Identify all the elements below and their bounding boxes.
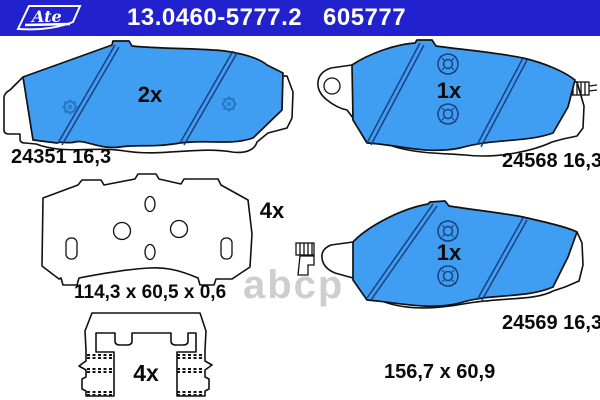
wva-number-outer: 24351 16,3 xyxy=(11,146,111,169)
pad-friction xyxy=(352,40,575,150)
qty-label: 1x xyxy=(437,78,462,103)
wva-number-inner-top: 24568 16,3 xyxy=(502,150,600,173)
qty-label: 2x xyxy=(138,82,163,107)
watermark: abcp xyxy=(243,263,344,308)
qty-label: 1x xyxy=(437,240,462,265)
reference-number: 605777 xyxy=(323,4,406,32)
pad-friction xyxy=(353,201,577,306)
ate-logo: Ate xyxy=(12,2,86,34)
qty-label: 4x xyxy=(260,198,285,223)
wva-number-inner-bottom: 24569 16,3 xyxy=(502,312,600,335)
clip-drawing: 4x xyxy=(70,305,220,400)
qty-label: 4x xyxy=(133,360,159,386)
shim-outline xyxy=(42,174,252,285)
shim-dimensions: 114,3 x 60,5 x 0,6 xyxy=(74,282,226,304)
brake-pad-catalog-image: Ate 13.0460-5777.2 605777 2x xyxy=(0,0,600,400)
header-bar: Ate 13.0460-5777.2 605777 xyxy=(0,0,600,36)
pad-dimensions: 156,7 x 60,9 xyxy=(384,361,495,384)
part-number: 13.0460-5777.2 xyxy=(127,4,302,32)
